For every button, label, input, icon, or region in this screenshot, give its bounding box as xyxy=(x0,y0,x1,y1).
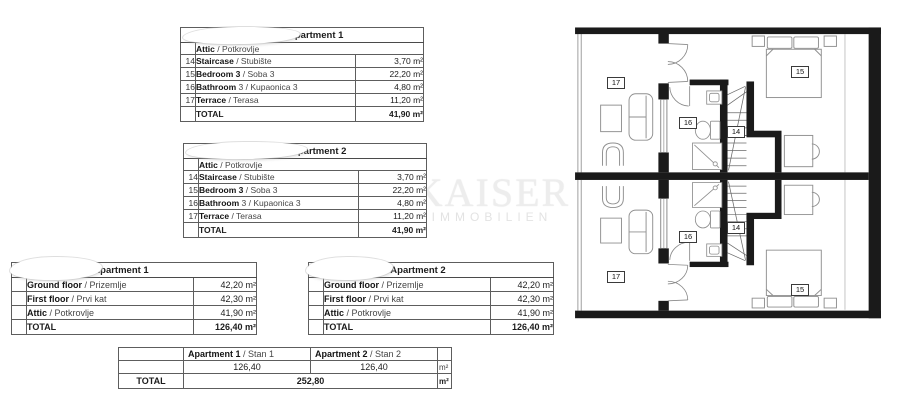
room-name: Bathroom 3 / Kupaonica 3 xyxy=(199,197,359,210)
section-label: Attic / Potkrovlje xyxy=(199,159,427,171)
room-name: Staircase / Stubište xyxy=(199,171,359,184)
floor-area: 41,90 m² xyxy=(491,306,554,320)
total-value: 126,40 m² xyxy=(491,320,554,335)
room-area: 22,20 m² xyxy=(359,184,427,197)
column-header-apartment-1: Apartment 1 / Stan 1 xyxy=(184,348,311,361)
watermark-subtitle: IMMOBILIEN xyxy=(406,210,578,224)
room-name: Bedroom 3 / Soba 3 xyxy=(196,68,356,81)
room-label-staircase-bottom: 14 xyxy=(727,222,745,234)
floor-name: Attic / Potkrovlje xyxy=(324,306,491,320)
total-value: 252,80 xyxy=(184,374,438,389)
total-value: 126,40 m² xyxy=(194,320,257,335)
room-area: 4,80 m² xyxy=(356,81,424,94)
total-row: TOTAL 252,80 m² xyxy=(119,374,452,389)
room-area: 3,70 m² xyxy=(359,171,427,184)
total-label: TOTAL xyxy=(324,320,491,335)
table-row: First floor / Prvi kat42,30 m² xyxy=(309,292,554,306)
room-label-bedroom-top: 15 xyxy=(791,66,809,78)
room-name: Bedroom 3 / Soba 3 xyxy=(199,184,359,197)
floor-area: 42,30 m² xyxy=(194,292,257,306)
section-row: Attic / Potkrovlje xyxy=(181,43,424,55)
section-label: Attic / Potkrovlje xyxy=(196,43,424,55)
room-label-terrace-top: 17 xyxy=(607,77,625,89)
total-row: TOTAL41,90 m² xyxy=(181,107,424,122)
room-label-terrace-bottom: 17 xyxy=(607,271,625,283)
total-row: TOTAL126,40 m² xyxy=(309,320,554,335)
room-name: Staircase / Stubište xyxy=(196,55,356,68)
total-label: TOTAL xyxy=(196,107,356,122)
room-label-staircase-top: 14 xyxy=(727,126,745,138)
floor-area: 42,30 m² xyxy=(491,292,554,306)
floor-area: 42,20 m² xyxy=(194,278,257,292)
column-header-apartment-2: Apartment 2 / Stan 2 xyxy=(311,348,438,361)
room-area: 11,20 m² xyxy=(356,94,424,107)
room-area: 4,80 m² xyxy=(359,197,427,210)
room-label-bathroom-bottom: 16 xyxy=(679,231,697,243)
grand-total-table: Apartment 1 / Stan 1 Apartment 2 / Stan … xyxy=(118,347,452,389)
floor-name: Attic / Potkrovlje xyxy=(27,306,194,320)
room-area: 11,20 m² xyxy=(359,210,427,223)
floor-name: First floor / Prvi kat xyxy=(324,292,491,306)
header-row: Apartment 1 / Stan 1 Apartment 2 / Stan … xyxy=(119,348,452,361)
table-row: 16Bathroom 3 / Kupaonica 34,80 m² xyxy=(181,81,424,94)
table-row: Attic / Potkrovlje41,90 m² xyxy=(12,306,257,320)
table-row: 17Terrace / Terasa11,20 m² xyxy=(181,94,424,107)
apartment-1-area: 126,40 xyxy=(184,361,311,374)
total-label: TOTAL xyxy=(199,223,359,238)
floor-name: First floor / Prvi kat xyxy=(27,292,194,306)
right-wall xyxy=(869,27,881,318)
total-value: 41,90 m² xyxy=(359,223,427,238)
table-row: 16Bathroom 3 / Kupaonica 34,80 m² xyxy=(184,197,427,210)
table-row: Attic / Potkrovlje41,90 m² xyxy=(309,306,554,320)
room-name: Terrace / Terasa xyxy=(196,94,356,107)
floor-area: 41,90 m² xyxy=(194,306,257,320)
room-area: 3,70 m² xyxy=(356,55,424,68)
room-name: Bathroom 3 / Kupaonica 3 xyxy=(196,81,356,94)
table-row: First floor / Prvi kat42,30 m² xyxy=(12,292,257,306)
apartment-2-area: 126,40 xyxy=(311,361,438,374)
total-row: TOTAL41,90 m² xyxy=(184,223,427,238)
document-page: KAISER IMMOBILIEN - Apartment 1 Attic / … xyxy=(0,0,919,400)
total-label: TOTAL xyxy=(119,374,184,389)
watermark: KAISER IMMOBILIEN xyxy=(406,172,578,224)
top-wall xyxy=(575,27,881,34)
section-row: Attic / Potkrovlje xyxy=(184,159,427,171)
watermark-brand: KAISER xyxy=(406,172,578,214)
room-area: 22,20 m² xyxy=(356,68,424,81)
table-row: 15Bedroom 3 / Soba 322,20 m² xyxy=(181,68,424,81)
room-name: Terrace / Terasa xyxy=(199,210,359,223)
floor-plan xyxy=(555,18,919,340)
table-row: 17Terrace / Terasa11,20 m² xyxy=(184,210,427,223)
bottom-wall xyxy=(575,311,881,319)
unit-cell: m² xyxy=(438,361,452,374)
unit-cell: m² xyxy=(438,374,452,389)
table-row: 15Bedroom 3 / Soba 322,20 m² xyxy=(184,184,427,197)
total-value: 41,90 m² xyxy=(356,107,424,122)
room-label-bathroom-top: 16 xyxy=(679,117,697,129)
total-label: TOTAL xyxy=(27,320,194,335)
total-row: TOTAL126,40 m² xyxy=(12,320,257,335)
table-row: 126,40 126,40 m² xyxy=(119,361,452,374)
party-wall xyxy=(575,172,869,180)
table-row: 14Staircase / Stubište3,70 m² xyxy=(184,171,427,184)
table-row: 14Staircase / Stubište3,70 m² xyxy=(181,55,424,68)
room-label-bedroom-bottom: 15 xyxy=(791,284,809,296)
floor-area: 42,20 m² xyxy=(491,278,554,292)
